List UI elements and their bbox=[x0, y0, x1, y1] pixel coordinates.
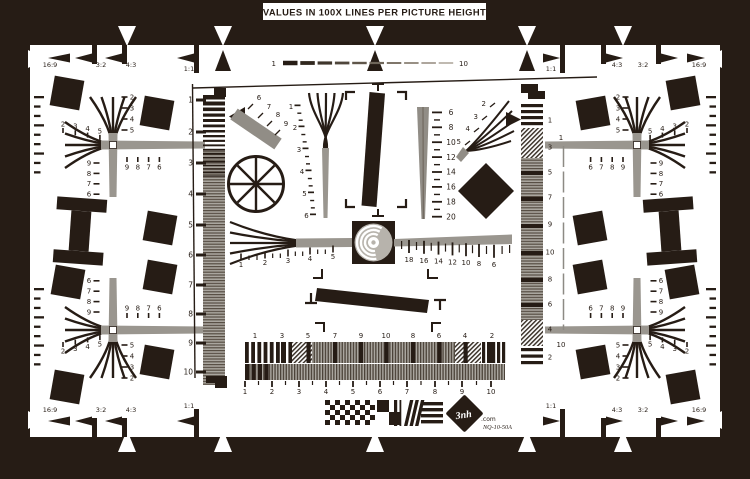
scale-dash bbox=[439, 62, 454, 63]
tick bbox=[122, 344, 128, 346]
tick bbox=[623, 344, 629, 346]
minor-tick bbox=[401, 241, 402, 249]
minor-tick bbox=[502, 246, 503, 254]
tick bbox=[137, 313, 139, 318]
edge-tick bbox=[706, 152, 716, 154]
edge-tick bbox=[706, 344, 716, 346]
scale-label: 7 bbox=[599, 304, 603, 312]
tick bbox=[196, 284, 206, 287]
scale-label: 9 bbox=[548, 220, 552, 228]
tick bbox=[196, 162, 206, 165]
aspect-label: 3:2 bbox=[638, 61, 648, 69]
tick bbox=[287, 250, 289, 257]
edge-tick bbox=[34, 316, 44, 318]
tick bbox=[196, 224, 206, 227]
edge-tick bbox=[34, 344, 44, 346]
coarse-bar bbox=[245, 364, 249, 380]
tick bbox=[122, 118, 128, 120]
tick bbox=[432, 171, 442, 173]
tick bbox=[423, 241, 425, 254]
aspect-bar bbox=[656, 418, 661, 437]
scale-label: 10 bbox=[183, 368, 193, 377]
tick bbox=[590, 157, 592, 162]
tick bbox=[649, 135, 651, 140]
scale-label: 1 bbox=[548, 116, 552, 124]
tick bbox=[461, 381, 463, 387]
minor-tick bbox=[431, 243, 432, 251]
scale-label: 3 bbox=[286, 257, 290, 265]
coarse-bar bbox=[482, 342, 485, 363]
minor-tick bbox=[472, 245, 473, 253]
scale-label: 5 bbox=[130, 126, 134, 134]
checker-cell bbox=[345, 400, 350, 405]
scale-label: 2 bbox=[548, 353, 552, 361]
target-dot bbox=[371, 240, 375, 244]
edge-tick bbox=[34, 105, 41, 107]
coarse-checker bbox=[377, 400, 389, 412]
scale-dash bbox=[421, 62, 436, 64]
scale-label: 2 bbox=[482, 100, 486, 108]
scale-label: 5 bbox=[548, 168, 552, 176]
tick bbox=[432, 201, 442, 203]
tilted-square bbox=[576, 96, 611, 131]
separator-bar bbox=[281, 342, 285, 363]
tick bbox=[651, 162, 657, 164]
checker-cell bbox=[360, 415, 365, 420]
tick bbox=[651, 173, 657, 175]
minor-tick bbox=[434, 119, 440, 120]
scale-label: 20 bbox=[446, 212, 456, 221]
tick bbox=[623, 118, 629, 120]
scale-label: 9 bbox=[621, 304, 625, 312]
scale-label: 5 bbox=[648, 341, 652, 349]
scale-label: 8 bbox=[449, 123, 454, 132]
tick bbox=[432, 156, 442, 158]
tick bbox=[649, 335, 651, 340]
tick bbox=[686, 342, 688, 347]
edge-tick bbox=[706, 288, 716, 290]
checker-cell bbox=[370, 405, 375, 410]
scale-label: 8 bbox=[87, 298, 91, 306]
scale-dash bbox=[300, 61, 315, 65]
checker-cell bbox=[325, 420, 330, 425]
aspect-label: 1:1 bbox=[184, 65, 194, 73]
coarse-bar bbox=[270, 342, 274, 363]
horizontal-bar bbox=[421, 414, 443, 417]
scale-label: 10 bbox=[382, 332, 391, 340]
tick bbox=[686, 128, 688, 133]
minor-tick bbox=[448, 381, 449, 385]
tick bbox=[352, 381, 354, 387]
tick bbox=[196, 254, 206, 257]
scale-label: 8 bbox=[477, 260, 481, 268]
scale-label: 3 bbox=[616, 363, 620, 371]
minor-tick bbox=[509, 245, 510, 253]
scale-label: 2 bbox=[270, 388, 274, 396]
scale-label: 5 bbox=[98, 341, 102, 349]
minor-tick bbox=[272, 254, 273, 259]
edge-tick bbox=[710, 354, 717, 356]
scale-label: 3 bbox=[616, 104, 620, 112]
scale-label: 7 bbox=[659, 288, 663, 296]
aspect-label: 16:9 bbox=[692, 61, 707, 69]
scale-label: 1 bbox=[239, 261, 243, 269]
scale-label: 9 bbox=[188, 339, 193, 348]
minor-tick bbox=[476, 381, 477, 385]
horizontal-bar bbox=[421, 402, 443, 405]
tick bbox=[623, 96, 629, 98]
logo-model: NQ-10-50A bbox=[482, 424, 512, 431]
scale-label: 7 bbox=[87, 180, 91, 188]
scale-dash bbox=[387, 62, 402, 64]
minor-tick bbox=[459, 244, 460, 252]
tick bbox=[432, 186, 442, 188]
resolution-line bbox=[203, 140, 225, 142]
scale-label: 10 bbox=[446, 138, 456, 147]
tick bbox=[309, 248, 311, 255]
scale-label: 14 bbox=[434, 258, 443, 266]
bar bbox=[659, 210, 682, 251]
resolution-line bbox=[203, 108, 225, 112]
tick bbox=[408, 240, 410, 253]
scale-label: 2 bbox=[616, 374, 620, 382]
horizontal-bar bbox=[421, 420, 443, 423]
scale-label: 16 bbox=[446, 183, 456, 192]
resolution-line bbox=[203, 125, 225, 128]
edge-tick bbox=[34, 96, 44, 98]
scale-label: 7 bbox=[267, 103, 271, 111]
resolution-line bbox=[203, 161, 225, 162]
aspect-label: 1:1 bbox=[546, 402, 556, 410]
scale-label: 7 bbox=[548, 193, 552, 201]
scale-label: 1 bbox=[559, 134, 563, 142]
minor-tick bbox=[434, 209, 440, 210]
tick bbox=[622, 157, 624, 162]
edge-tick bbox=[706, 124, 716, 126]
aspect-bar bbox=[656, 45, 661, 64]
scale-label: 4 bbox=[660, 125, 665, 133]
scale-label: 3 bbox=[297, 388, 301, 396]
scale-label: 6 bbox=[304, 212, 309, 220]
aspect-bar bbox=[122, 418, 127, 437]
tick bbox=[623, 377, 629, 379]
tick bbox=[651, 290, 657, 292]
coarse-bar bbox=[276, 342, 280, 363]
minor-tick bbox=[306, 163, 310, 164]
scale-label: 9 bbox=[125, 304, 129, 312]
scale-label: 8 bbox=[136, 163, 140, 171]
minor-tick bbox=[339, 381, 340, 385]
scale-label: 18 bbox=[405, 256, 414, 264]
tick bbox=[87, 337, 89, 342]
edge-tick bbox=[710, 134, 717, 136]
scale-label: 3 bbox=[130, 104, 134, 112]
scale-label: 16 bbox=[420, 257, 429, 265]
coarse-bar bbox=[487, 342, 490, 363]
checker-cell bbox=[355, 400, 360, 405]
minor-tick bbox=[434, 149, 440, 150]
scale-label: 3 bbox=[474, 113, 478, 121]
scale-label: 2 bbox=[616, 93, 620, 101]
fine-section bbox=[521, 158, 543, 320]
separator-bar bbox=[464, 342, 468, 363]
scale-label: 12 bbox=[448, 258, 457, 266]
scale-label: 1 bbox=[188, 96, 193, 105]
separator-bar bbox=[490, 342, 494, 363]
tick bbox=[196, 99, 206, 102]
tick bbox=[75, 340, 77, 345]
edge-tick bbox=[34, 307, 41, 309]
tick bbox=[298, 381, 300, 387]
scale-label: 8 bbox=[87, 170, 91, 178]
tick bbox=[406, 381, 408, 387]
edge-tick bbox=[706, 316, 716, 318]
checker-cell bbox=[350, 415, 355, 420]
tilted-square bbox=[143, 260, 178, 295]
tick bbox=[137, 157, 139, 162]
scale-label: 6 bbox=[659, 277, 664, 285]
bar bbox=[69, 210, 92, 251]
tick bbox=[662, 133, 664, 138]
minor-tick bbox=[297, 113, 301, 114]
scale-label: 7 bbox=[87, 288, 91, 296]
scale-label: 3 bbox=[73, 345, 77, 353]
coarse-bar bbox=[521, 361, 543, 364]
scale-label: 1 bbox=[289, 103, 293, 111]
aspect-label: 3:2 bbox=[96, 61, 106, 69]
coarse-bar bbox=[245, 342, 249, 363]
scale-label: 8 bbox=[411, 332, 415, 340]
scale-label: 2 bbox=[130, 93, 134, 101]
scale-label: 8 bbox=[659, 170, 663, 178]
coarse-bar bbox=[288, 342, 292, 363]
scale-label: 4 bbox=[548, 325, 553, 333]
scale-label: 4 bbox=[660, 343, 665, 351]
tick bbox=[674, 130, 676, 135]
resolution-line bbox=[203, 153, 225, 155]
tick bbox=[148, 157, 150, 162]
checker-cell bbox=[350, 405, 355, 410]
cross-center-square bbox=[634, 327, 641, 334]
resolution-line bbox=[203, 149, 225, 151]
scale-label: 5 bbox=[302, 190, 306, 198]
scale-label: 10 bbox=[546, 248, 555, 256]
minor-tick bbox=[325, 250, 326, 255]
scale-label: 9 bbox=[659, 308, 663, 316]
tick bbox=[99, 135, 101, 140]
minor-tick bbox=[434, 134, 440, 135]
resolution-line bbox=[203, 135, 225, 137]
coarse-bar bbox=[264, 342, 268, 363]
separator-bar bbox=[521, 251, 543, 255]
scale-label: 5 bbox=[331, 253, 335, 261]
separator-bar bbox=[411, 342, 415, 363]
minor-tick bbox=[301, 134, 305, 135]
tick bbox=[94, 280, 100, 282]
scale-label: 6 bbox=[378, 388, 383, 396]
scale-label: 2 bbox=[61, 347, 65, 355]
logo-suffix: .com bbox=[481, 416, 496, 423]
tick bbox=[148, 313, 150, 318]
edge-tick bbox=[34, 288, 44, 290]
minor-tick bbox=[416, 242, 417, 250]
scale-label: 8 bbox=[433, 388, 437, 396]
tick bbox=[662, 337, 664, 342]
checker-cell bbox=[330, 415, 335, 420]
scale-label: 1 bbox=[253, 332, 257, 340]
fine-band bbox=[245, 364, 505, 380]
tick bbox=[94, 301, 100, 303]
separator-bar bbox=[438, 342, 442, 363]
tick bbox=[122, 129, 128, 131]
tilted-square bbox=[140, 96, 175, 131]
separator-bar bbox=[521, 303, 543, 307]
checker-cell bbox=[360, 405, 365, 410]
coarse-bar bbox=[265, 364, 269, 380]
tilted-square bbox=[576, 345, 611, 380]
scale-label: 2 bbox=[188, 128, 193, 137]
tick bbox=[306, 170, 312, 172]
checker-cell bbox=[325, 410, 330, 415]
scale-dash bbox=[283, 61, 298, 66]
checker-cell bbox=[340, 405, 345, 410]
aspect-bar bbox=[601, 45, 606, 64]
tick bbox=[196, 342, 206, 345]
tick bbox=[310, 214, 316, 216]
scale-label: 4 bbox=[324, 388, 329, 396]
aspect-bar bbox=[601, 418, 606, 437]
scale-label: 6 bbox=[87, 277, 92, 285]
tick bbox=[244, 381, 246, 387]
tick bbox=[325, 381, 327, 387]
scale-label: 5 bbox=[130, 341, 134, 349]
resolution-line bbox=[203, 169, 225, 170]
scale-label: 5 bbox=[648, 127, 652, 135]
bar-end-mark bbox=[215, 381, 227, 388]
scale-label: 4 bbox=[300, 168, 305, 176]
scale-label: 5 bbox=[457, 138, 461, 146]
tick bbox=[62, 342, 64, 347]
checker-cell bbox=[345, 420, 350, 425]
resolution-line bbox=[203, 114, 225, 117]
resolution-line bbox=[203, 175, 225, 176]
tick bbox=[623, 129, 629, 131]
separator-bar bbox=[521, 197, 543, 201]
minor-tick bbox=[256, 256, 257, 261]
aspect-label: 16:9 bbox=[43, 406, 58, 414]
scale-label: 10 bbox=[462, 259, 471, 267]
scale-label: 4 bbox=[85, 343, 90, 351]
scale-label: 8 bbox=[610, 163, 614, 171]
aspect-label: 16:9 bbox=[692, 406, 707, 414]
resolution-line bbox=[203, 157, 225, 159]
scale-label: 5 bbox=[306, 332, 310, 340]
coarse-bar bbox=[521, 116, 543, 119]
horizontal-bar bbox=[421, 408, 443, 411]
aspect-label: 4:3 bbox=[612, 406, 622, 414]
scale-label: 8 bbox=[136, 304, 140, 312]
aspect-bar bbox=[194, 45, 199, 73]
coarse-bar bbox=[521, 355, 543, 358]
tick bbox=[434, 381, 436, 387]
separator-bar bbox=[521, 171, 543, 175]
minor-tick bbox=[302, 252, 303, 257]
minor-tick bbox=[305, 156, 309, 157]
separator-bar bbox=[307, 342, 311, 363]
tick bbox=[159, 157, 161, 162]
tick bbox=[87, 133, 89, 138]
edge-tick bbox=[34, 162, 41, 164]
scale-label: 2 bbox=[685, 347, 689, 355]
scale-label: 7 bbox=[405, 388, 409, 396]
scale-label: 3 bbox=[548, 143, 552, 151]
resolution-line bbox=[203, 102, 225, 106]
aspect-label: 16:9 bbox=[43, 61, 58, 69]
tick bbox=[622, 313, 624, 318]
scale-label: 9 bbox=[125, 163, 129, 171]
separator-bar bbox=[385, 342, 389, 363]
scale-label: 4 bbox=[463, 332, 468, 340]
tick bbox=[623, 107, 629, 109]
aspect-label: 1:1 bbox=[184, 402, 194, 410]
scale-label: 10 bbox=[487, 388, 496, 396]
scale-label: 5 bbox=[188, 221, 193, 230]
tick bbox=[295, 105, 301, 107]
edge-tick bbox=[710, 171, 717, 173]
edge-tick bbox=[34, 115, 41, 117]
minor-tick bbox=[434, 194, 440, 195]
checker-cell bbox=[340, 415, 345, 420]
tick bbox=[432, 141, 442, 143]
tilted-square bbox=[666, 76, 701, 111]
tick bbox=[94, 193, 100, 195]
minor-tick bbox=[445, 244, 446, 252]
tick bbox=[196, 193, 206, 196]
scale-label: 6 bbox=[157, 304, 162, 312]
minor-tick bbox=[434, 179, 440, 180]
scale-dash bbox=[352, 62, 367, 64]
scale-label: 4 bbox=[616, 352, 621, 360]
aspect-label: 1:1 bbox=[546, 65, 556, 73]
edge-tick bbox=[34, 143, 41, 145]
tick bbox=[590, 313, 592, 318]
scale-dash bbox=[335, 62, 350, 65]
bar-end-mark bbox=[214, 88, 226, 97]
edge-tick bbox=[34, 335, 41, 337]
tilted-square bbox=[50, 370, 85, 405]
tick bbox=[651, 301, 657, 303]
checker-cell bbox=[345, 410, 350, 415]
chart-title: VALUES IN 100X LINES PER PICTURE HEIGHT bbox=[263, 7, 486, 18]
test-chart-canvas: VALUES IN 100X LINES PER PICTURE HEIGHT … bbox=[0, 0, 750, 479]
edge-tick bbox=[34, 326, 41, 328]
scale-label: 2 bbox=[263, 259, 267, 267]
scale-label: 6 bbox=[188, 251, 193, 260]
tick bbox=[94, 173, 100, 175]
aspect-label: 4:3 bbox=[612, 61, 622, 69]
scale-label: 7 bbox=[188, 281, 193, 290]
aspect-label: 4:3 bbox=[126, 61, 136, 69]
aspect-bar bbox=[194, 409, 199, 437]
scale-label: 9 bbox=[359, 332, 363, 340]
scale-label: 6 bbox=[449, 108, 454, 117]
edge-tick bbox=[706, 96, 716, 98]
column-end-mark bbox=[528, 91, 545, 99]
tick bbox=[651, 311, 657, 313]
tick bbox=[651, 183, 657, 185]
scale-label: 7 bbox=[599, 163, 603, 171]
scale-label: 7 bbox=[659, 180, 663, 188]
